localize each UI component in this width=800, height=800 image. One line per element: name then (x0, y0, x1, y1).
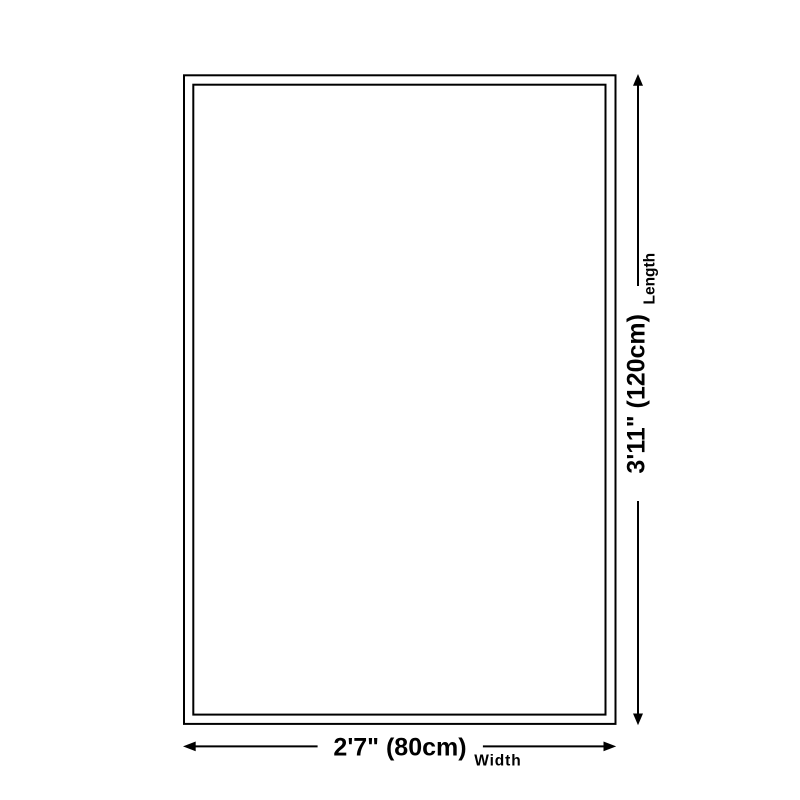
svg-text:3'11" (120cm): 3'11" (120cm) (623, 314, 651, 474)
svg-text:2'7" (80cm): 2'7" (80cm) (333, 733, 466, 761)
svg-text:Length: Length (642, 253, 659, 305)
svg-text:Width: Width (474, 752, 521, 769)
